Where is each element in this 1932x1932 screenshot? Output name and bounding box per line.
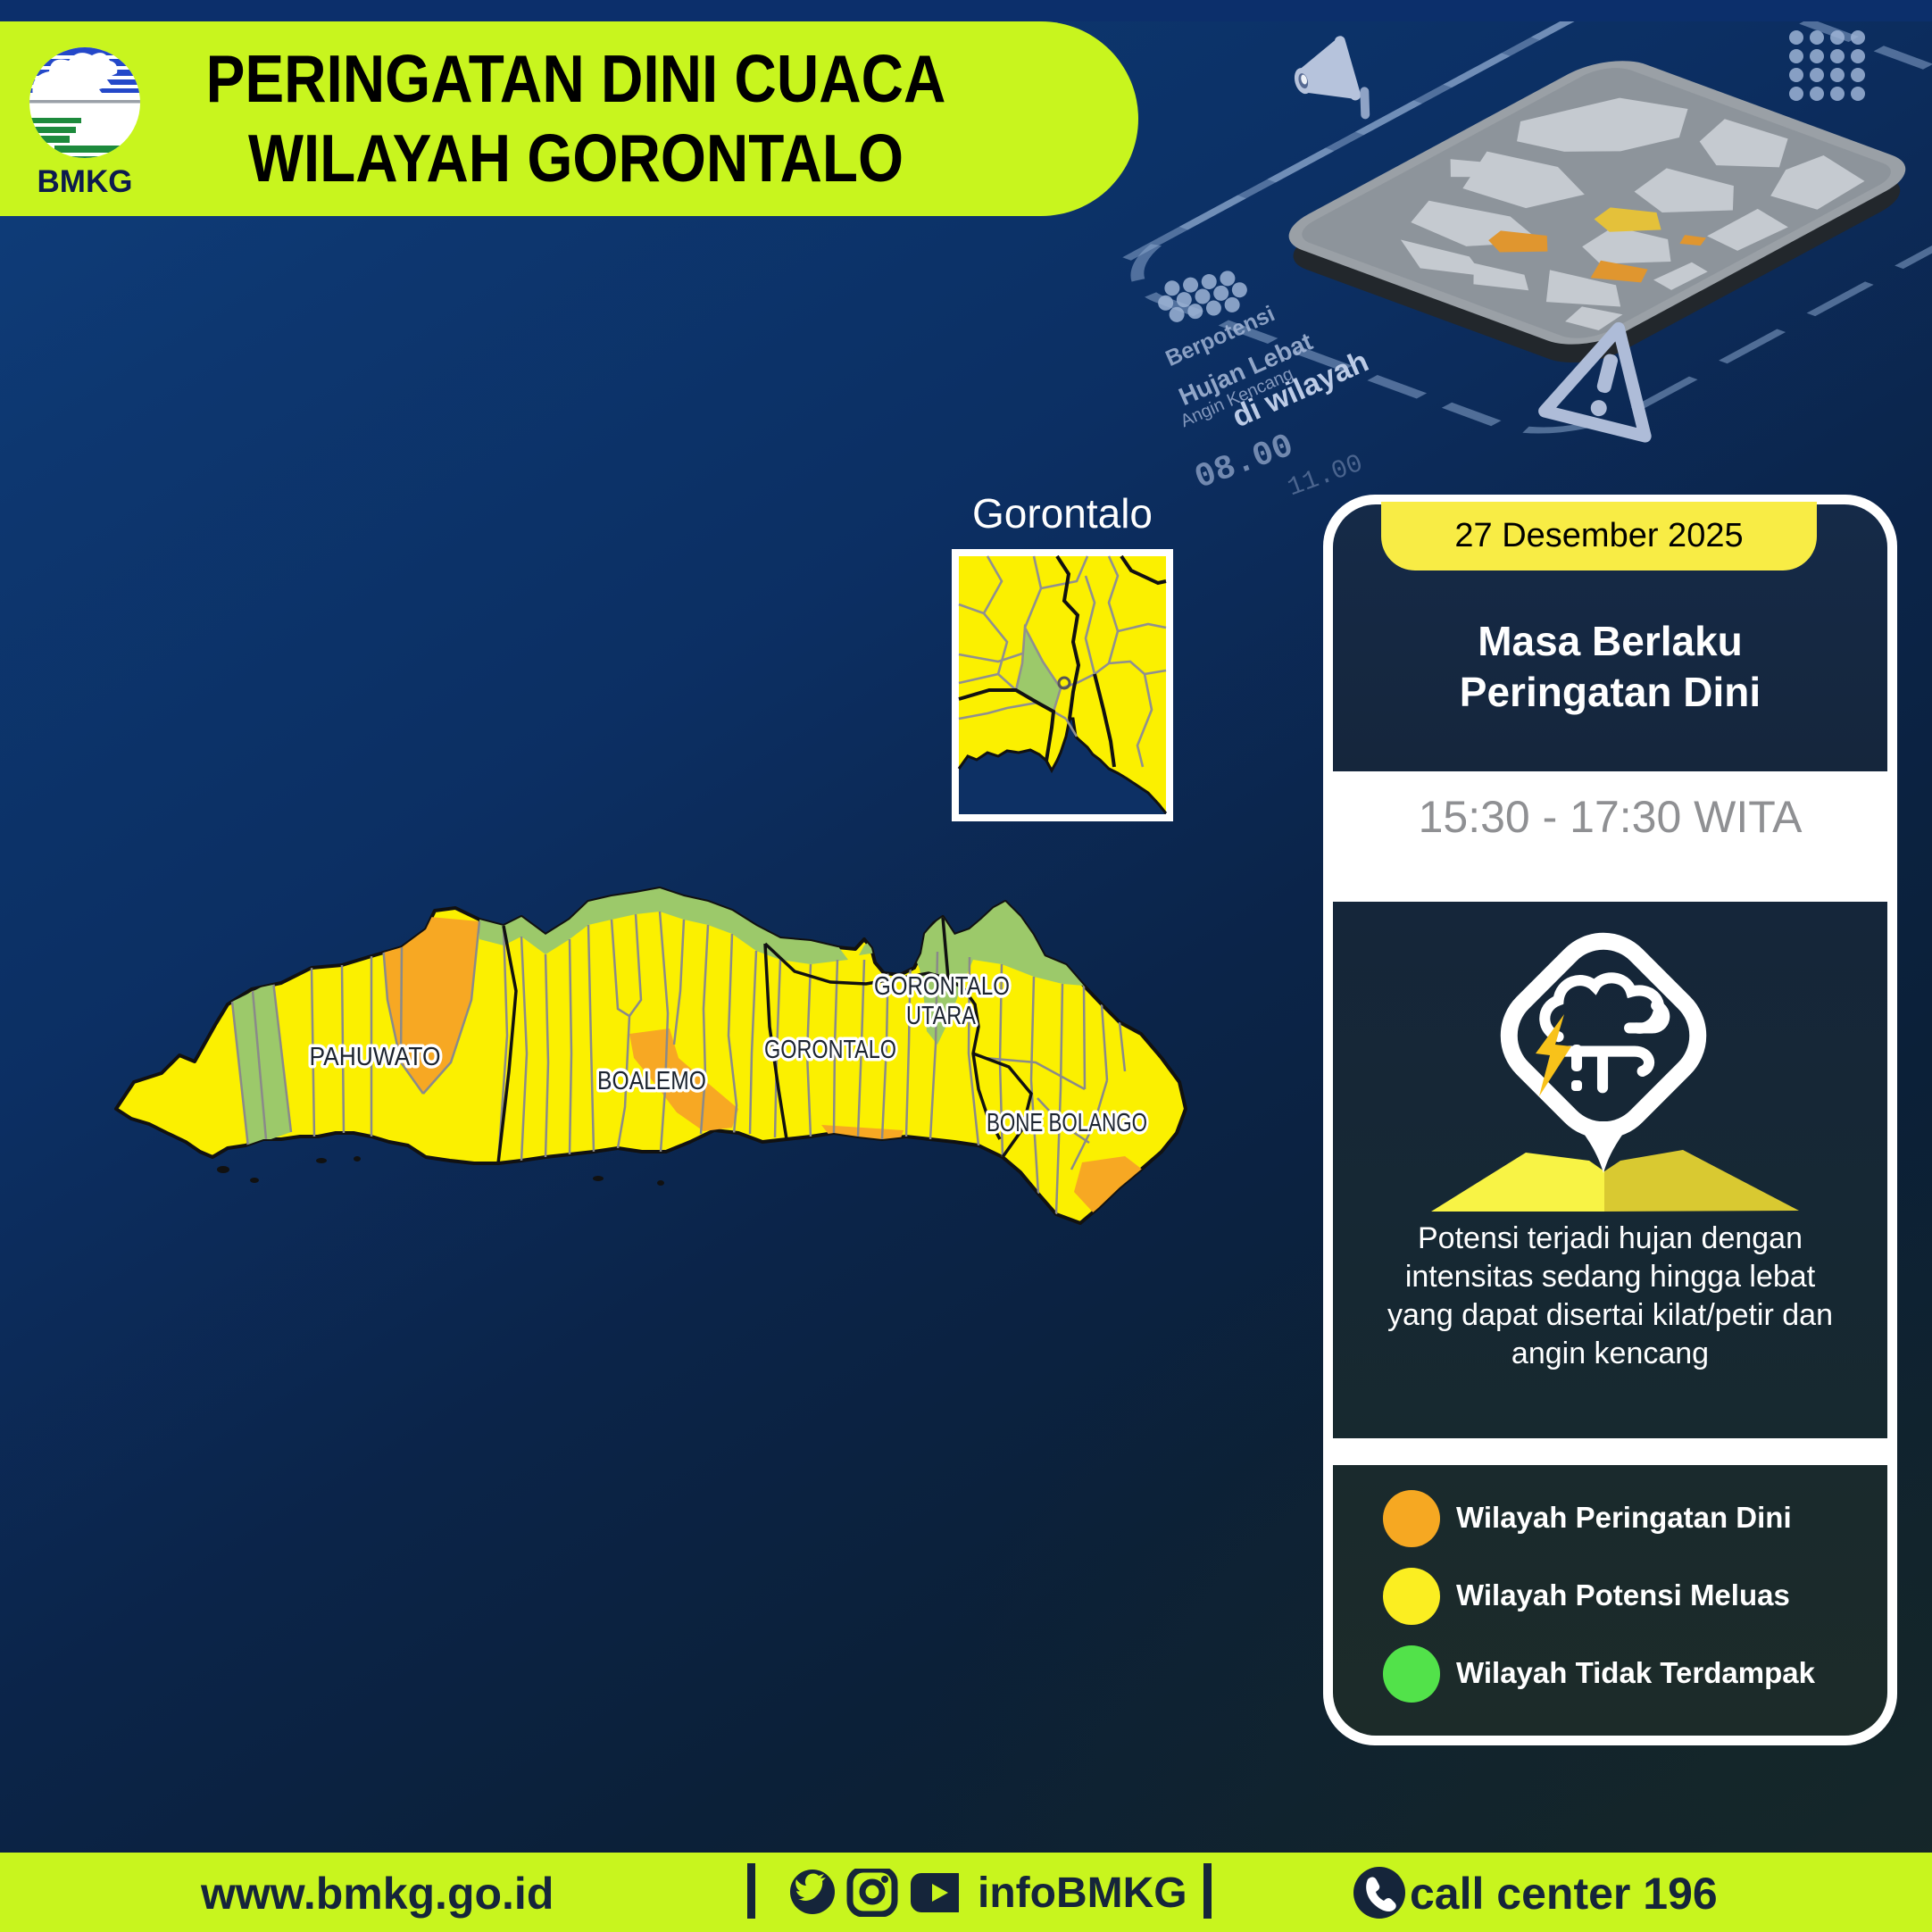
svg-text:UTARA: UTARA xyxy=(906,1002,977,1030)
svg-text:BMKG: BMKG xyxy=(37,164,133,195)
svg-text:BONE BOLANGO: BONE BOLANGO xyxy=(987,1109,1147,1137)
svg-text:PAHUWATO: PAHUWATO xyxy=(310,1043,441,1071)
svg-text:GORONTALO: GORONTALO xyxy=(874,972,1010,1001)
svg-text:08.00: 08.00 xyxy=(1190,427,1299,497)
svg-text:BOALEMO: BOALEMO xyxy=(597,1067,706,1095)
svg-text:GORONTALO: GORONTALO xyxy=(764,1036,896,1064)
